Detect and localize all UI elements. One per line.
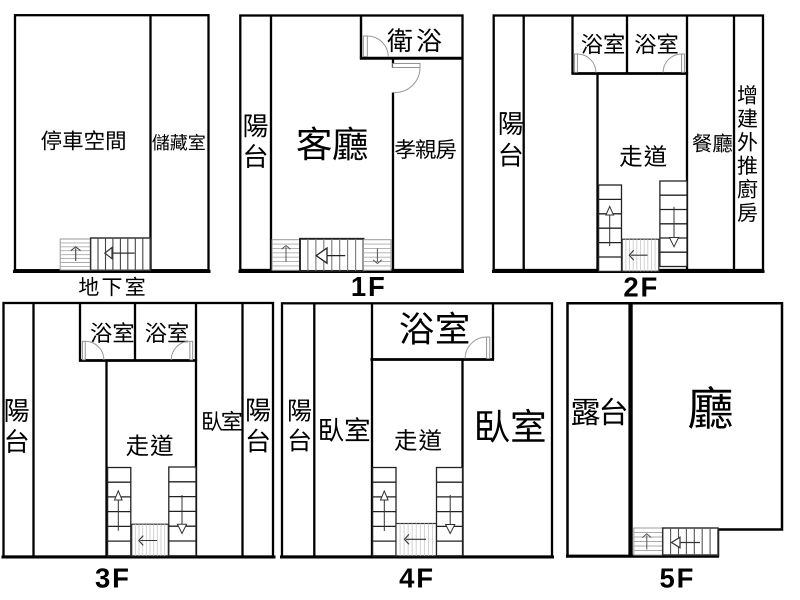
svg-text:5F: 5F — [660, 563, 696, 594]
svg-text:3F: 3F — [95, 563, 131, 594]
svg-text:4F: 4F — [399, 563, 435, 594]
svg-text:2F: 2F — [623, 272, 659, 303]
svg-text:1F: 1F — [351, 271, 387, 302]
